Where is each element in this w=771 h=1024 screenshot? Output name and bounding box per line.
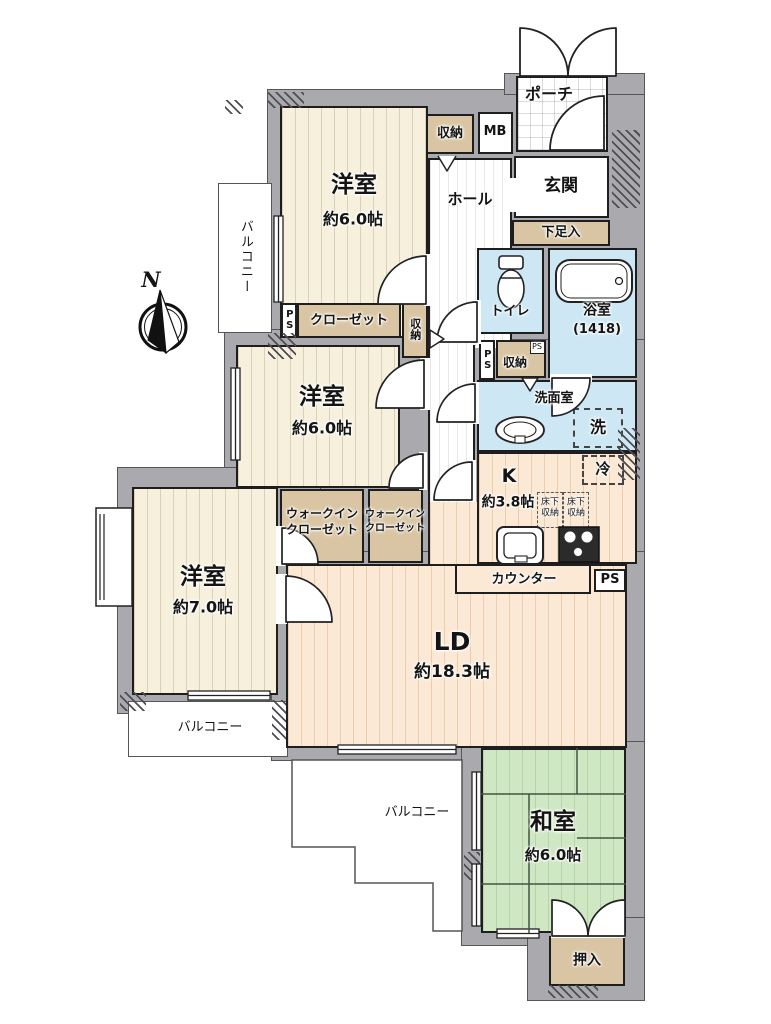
label-washroom: 洗面室 bbox=[534, 392, 573, 406]
label-hall: ホール bbox=[447, 192, 492, 208]
label-kitchen-size: 約3.8帖 bbox=[482, 496, 535, 511]
opening-washroom bbox=[471, 382, 479, 424]
label-shoe-cabinet: 下足入 bbox=[541, 226, 580, 240]
label-ld-size: 約18.3帖 bbox=[414, 664, 490, 682]
hatch-ps-left bbox=[268, 333, 296, 359]
opening-toilet bbox=[473, 300, 481, 344]
hatch-washitsu-left bbox=[464, 852, 480, 880]
label-ld-name: LD bbox=[434, 629, 471, 655]
label-underfloor-left-2: 収納 bbox=[541, 509, 559, 518]
floor-plan: N ポーチ MB 収納 玄関 下足入 ホール 洋室 約6.0帖 PS クローゼッ… bbox=[0, 0, 771, 1024]
balcony-bottom-outline bbox=[292, 760, 462, 931]
label-washer: 洗 bbox=[590, 420, 606, 437]
opening-oshiire bbox=[551, 930, 625, 938]
opening-wic-right bbox=[419, 452, 427, 490]
label-counter: カウンター bbox=[491, 573, 556, 587]
hatch-bedroom-left-corner bbox=[120, 692, 146, 711]
label-bedroom-top-size: 約6.0帖 bbox=[323, 212, 383, 229]
label-washitsu-name: 和室 bbox=[530, 810, 576, 834]
label-ps-toilet: PS bbox=[482, 349, 493, 371]
label-wic-left-1: ウォークイン bbox=[286, 508, 358, 521]
opening-ld-bedroom-left bbox=[276, 574, 287, 624]
label-bathroom-name: 浴室 bbox=[583, 304, 611, 319]
room-japanese bbox=[481, 748, 626, 933]
label-oshiire: 押入 bbox=[573, 954, 601, 969]
label-balcony-bottom: バルコニー bbox=[385, 806, 450, 820]
room-bedroom-left bbox=[132, 487, 278, 695]
label-washitsu-size: 約6.0帖 bbox=[525, 848, 582, 864]
label-bedroom-mid-size: 約6.0帖 bbox=[292, 421, 352, 438]
label-bedroom-mid-name: 洋室 bbox=[299, 385, 345, 409]
label-wic-left-2: クローゼット bbox=[286, 524, 358, 537]
opening-wic-left bbox=[276, 526, 285, 566]
label-storage-top: 収納 bbox=[437, 127, 463, 141]
label-entrance: 玄関 bbox=[544, 178, 578, 196]
label-ps-counter: PS bbox=[601, 573, 620, 587]
label-storage-mid: 収納 bbox=[409, 318, 421, 340]
label-wic-right-1: ウォークイン bbox=[365, 510, 425, 521]
label-kitchen-name: K bbox=[502, 467, 517, 487]
label-compass-n: N bbox=[141, 269, 160, 291]
label-bedroom-top-name: 洋室 bbox=[331, 173, 377, 197]
label-bedroom-left-size: 約7.0帖 bbox=[173, 600, 233, 617]
label-toilet: トイレ bbox=[490, 305, 529, 319]
opening-kitchen bbox=[468, 460, 476, 502]
label-meter-box: MB bbox=[484, 125, 507, 139]
label-underfloor-left-1: 床下 bbox=[541, 498, 559, 507]
label-bathroom-size: (1418) bbox=[573, 323, 621, 337]
hatch-oshiire-bottom bbox=[548, 985, 598, 998]
label-storage-wash: 収納 bbox=[503, 357, 527, 370]
opening-bath bbox=[550, 374, 592, 382]
label-underfloor-right-2: 収納 bbox=[567, 509, 585, 518]
label-ps-small: PS bbox=[532, 343, 542, 351]
porch-double-door bbox=[520, 28, 616, 76]
compass-icon bbox=[140, 290, 186, 353]
label-porch: ポーチ bbox=[525, 87, 573, 104]
label-bedroom-left-name: 洋室 bbox=[180, 565, 226, 589]
opening-bedroom-mid bbox=[420, 358, 430, 410]
room-hall-ld-connector bbox=[428, 502, 477, 566]
opening-entrance-hall bbox=[509, 178, 518, 212]
label-balcony-left: バルコニー bbox=[238, 220, 252, 295]
room-bedroom-mid bbox=[236, 345, 400, 488]
hatch-balcony-top bbox=[225, 100, 243, 114]
opening-bedroom-top bbox=[424, 254, 432, 306]
hatch-porch-right bbox=[612, 130, 640, 208]
label-underfloor-right-1: 床下 bbox=[567, 498, 585, 507]
hatch-kitchen-right bbox=[618, 428, 640, 480]
room-toilet bbox=[477, 248, 544, 334]
label-balcony-bottom-left: バルコニー bbox=[178, 721, 243, 735]
hatch-top-left bbox=[268, 92, 304, 108]
label-wic-right-2: クローゼット bbox=[365, 524, 425, 535]
label-closet: クローゼット bbox=[310, 314, 388, 328]
label-refrigerator: 冷 bbox=[595, 462, 610, 478]
label-ps-left: PS bbox=[284, 309, 295, 331]
hatch-ld-bottom-left bbox=[272, 700, 286, 740]
